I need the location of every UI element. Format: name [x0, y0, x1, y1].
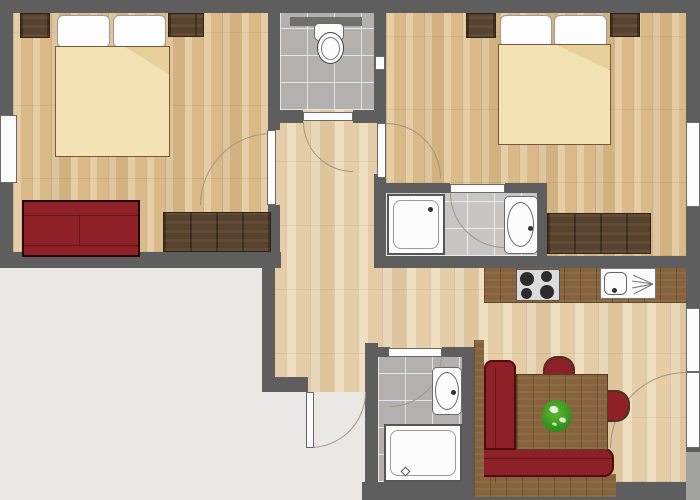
door-leaf — [377, 123, 386, 178]
wardrobe — [466, 13, 496, 38]
sink-drain — [612, 288, 617, 293]
stove — [516, 269, 560, 301]
window — [686, 122, 700, 207]
shower — [387, 194, 445, 255]
corner-bench-bottom-arm — [484, 448, 614, 477]
wall-segment — [262, 268, 275, 392]
sofa-seam — [24, 215, 138, 216]
bench-seam — [484, 458, 612, 459]
stove-burner — [521, 288, 532, 299]
kitchen-sink — [600, 268, 656, 299]
door-leaf — [303, 112, 353, 121]
sofa-seam — [24, 245, 138, 246]
chair — [543, 356, 575, 376]
door-leaf — [267, 130, 276, 205]
double-bed — [55, 13, 168, 157]
door-leaf — [450, 184, 505, 193]
blanket-fold — [125, 47, 169, 74]
wall-segment — [374, 256, 698, 268]
door-leaf — [388, 348, 442, 357]
door-leaf — [686, 372, 700, 448]
dresser — [163, 212, 271, 252]
stove-burner — [540, 285, 554, 299]
wall-segment — [374, 183, 386, 267]
sink-drainer-icon — [631, 272, 654, 296]
wall-segment — [686, 0, 700, 122]
wardrobe — [168, 13, 204, 37]
shower — [384, 424, 462, 482]
door-leaf — [306, 392, 314, 448]
wardrobe — [610, 13, 640, 37]
double-bed — [498, 13, 609, 143]
wall-segment — [0, 13, 13, 115]
basin-drain — [528, 226, 533, 231]
dresser — [547, 213, 651, 254]
wall-segment — [462, 347, 474, 500]
toilet — [317, 32, 344, 64]
floor-plan — [0, 0, 700, 500]
blanket — [498, 44, 611, 145]
toilet-bowl — [321, 37, 340, 60]
window — [686, 308, 700, 372]
stove-burner — [520, 272, 534, 286]
wall-segment — [0, 0, 700, 13]
pillow — [57, 15, 110, 48]
pillow — [113, 15, 166, 48]
shower-drain — [401, 467, 411, 477]
wardrobe — [20, 13, 50, 38]
washbasin-counter — [504, 196, 538, 254]
washbasin — [507, 202, 534, 247]
plant-highlight — [549, 405, 559, 414]
blanket — [55, 46, 170, 157]
wall-switch — [375, 56, 385, 70]
wall-segment — [365, 343, 378, 500]
wall-segment — [270, 110, 303, 123]
wall-segment — [537, 183, 547, 267]
red-sofa — [22, 200, 140, 257]
basin-drain — [451, 390, 456, 395]
washbasin-counter — [432, 367, 462, 415]
sofa-seam — [79, 215, 80, 246]
wall-segment — [686, 207, 700, 308]
shower-drain — [428, 207, 433, 212]
stove-burner — [541, 271, 552, 282]
window — [0, 115, 17, 183]
wall-segment — [353, 110, 386, 123]
wall-pillar — [686, 452, 700, 500]
wall-segment — [262, 377, 308, 392]
blanket-fold — [556, 45, 610, 70]
